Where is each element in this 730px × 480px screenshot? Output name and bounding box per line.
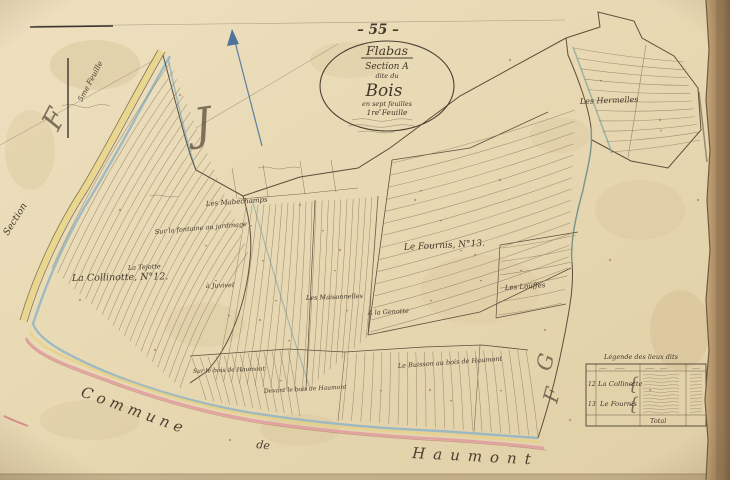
vignette-overlay: [0, 0, 730, 480]
cadastral-map-scan: – 55 – Flabas Section A dite du Bois en …: [0, 0, 730, 480]
map-canvas: – 55 – Flabas Section A dite du Bois en …: [0, 0, 730, 480]
